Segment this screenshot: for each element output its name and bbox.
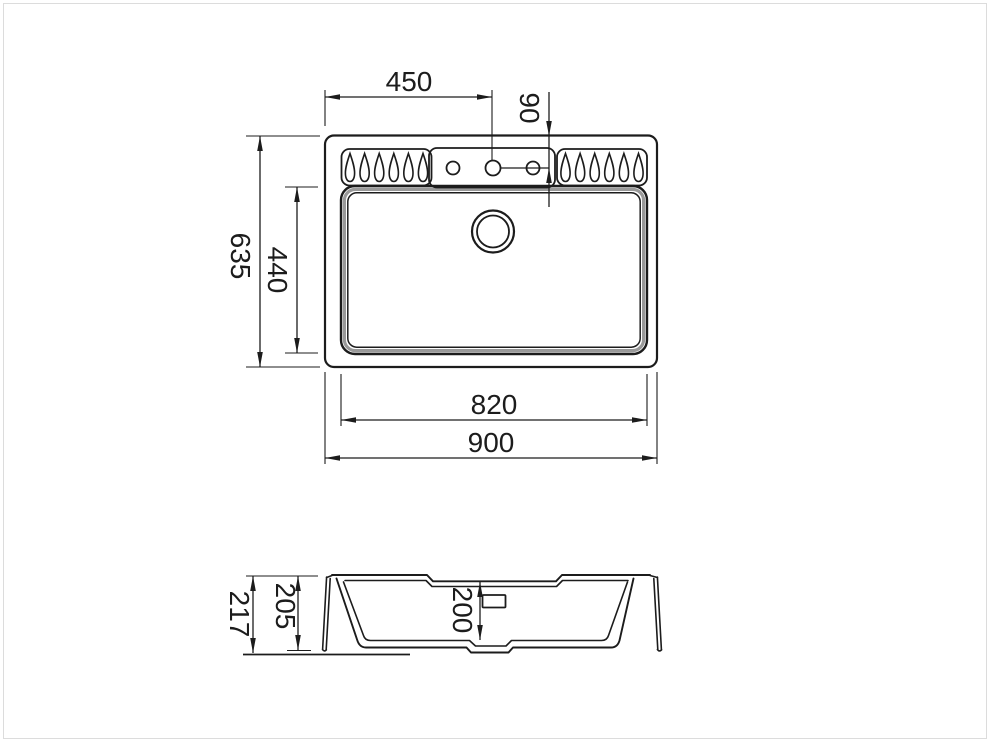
- bowl-outer-shell: [337, 579, 634, 653]
- bracket-right-inner: [654, 579, 658, 650]
- dim-450-label: 450: [386, 66, 433, 97]
- bracket-left-foot: [323, 650, 327, 651]
- arrow-down-icon: [294, 338, 300, 353]
- arrow-up-icon: [294, 187, 300, 202]
- top-view: 450 90 635: [225, 66, 657, 464]
- drain-outer-circle: [472, 211, 514, 253]
- mounting-bracket-left: [323, 576, 332, 651]
- drain-inner-circle: [477, 216, 509, 248]
- dim-205-label: 205: [270, 583, 301, 630]
- dim-450: 450: [325, 66, 492, 160]
- dim-440-label: 440: [262, 247, 293, 294]
- drainer-groove: [576, 154, 585, 182]
- arrow-up-icon: [257, 136, 263, 151]
- drainer-panel-right: [557, 149, 647, 186]
- drainer-groove: [634, 154, 643, 182]
- dim-200: 200: [447, 582, 483, 640]
- dim-217-label: 217: [224, 591, 255, 638]
- dim-200-label: 200: [447, 587, 478, 634]
- bracket-right-top: [650, 576, 657, 578]
- dim-900-label: 900: [468, 427, 515, 458]
- drainer-groove: [619, 154, 628, 182]
- bracket-right-foot: [657, 650, 661, 651]
- arrow-right-icon: [477, 94, 492, 100]
- dim-205: 205: [270, 576, 311, 651]
- tap-hole-center: [486, 161, 501, 176]
- drainer-grooves-right: [561, 154, 643, 182]
- drainer-groove: [605, 154, 614, 182]
- arrow-right-icon: [642, 455, 657, 461]
- arrow-left-icon: [341, 417, 356, 423]
- bracket-left-outer: [323, 577, 327, 650]
- arrow-down-icon: [295, 635, 301, 650]
- drainer-groove: [345, 154, 354, 182]
- drainer-groove: [389, 154, 398, 182]
- arrow-right-icon: [632, 417, 647, 423]
- drainer-panel-left: [342, 149, 432, 186]
- bowl-chamfer-shading: [344, 189, 643, 350]
- bowl-inner-shell: [344, 582, 628, 646]
- drainer-groove: [360, 154, 369, 182]
- drainer-groove: [404, 154, 413, 182]
- bracket-left-top: [327, 576, 332, 578]
- drainer-groove: [561, 154, 570, 182]
- dim-820: 820: [341, 374, 647, 426]
- dim-635-label: 635: [225, 233, 256, 280]
- arrow-up-icon: [546, 168, 552, 183]
- arrow-left-icon: [325, 455, 340, 461]
- arrow-down-icon: [250, 638, 256, 653]
- dim-90-label: 90: [514, 92, 545, 123]
- mounting-bracket-right: [650, 576, 662, 651]
- drainer-groove: [418, 154, 427, 182]
- arrow-left-icon: [325, 94, 340, 100]
- overflow-hole: [483, 595, 506, 608]
- bracket-right-outer: [657, 577, 661, 650]
- bracket-left-inner: [326, 579, 330, 650]
- drainer-groove: [590, 154, 599, 182]
- tap-hole-left: [447, 162, 460, 175]
- arrow-down-icon: [546, 121, 552, 136]
- drainer-grooves-left: [345, 154, 427, 182]
- arrow-up-icon: [250, 576, 256, 591]
- arrow-down-icon: [257, 352, 263, 367]
- section-view: 217 205 200: [224, 575, 662, 655]
- sink-dimension-drawing: 450 90 635: [0, 0, 990, 742]
- drainer-groove: [375, 154, 384, 182]
- dim-217: 217: [224, 576, 256, 653]
- dim-820-label: 820: [471, 389, 518, 420]
- dim-440: 440: [262, 187, 318, 353]
- technical-drawing-canvas: 450 90 635: [0, 0, 990, 742]
